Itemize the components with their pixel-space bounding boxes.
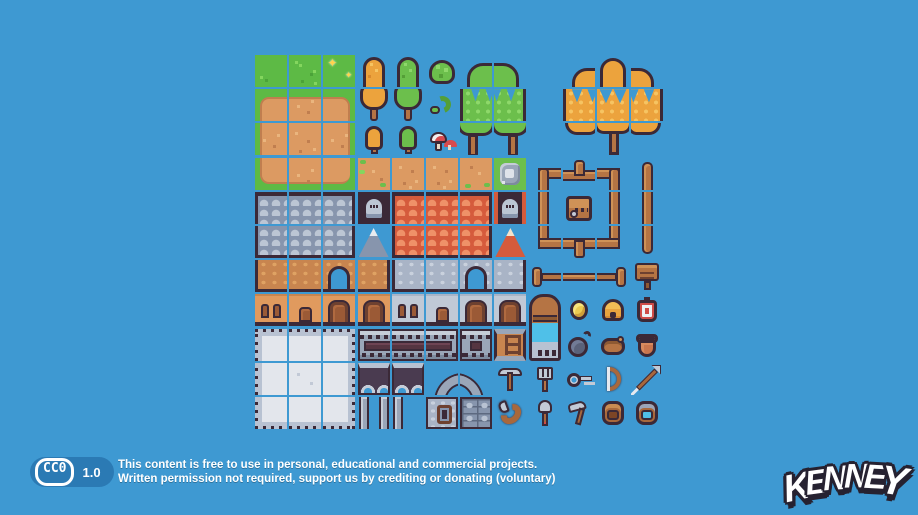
tile-wallG-arch [460, 260, 492, 292]
tile-plat-l [255, 363, 287, 395]
tile-treeO-sm [358, 123, 390, 155]
tile-doorG-s [426, 294, 458, 326]
tile-btO-br [631, 123, 663, 155]
tile-btO-mc [597, 89, 629, 121]
tile-fence-tr [597, 158, 629, 190]
tile-roofO-d [392, 226, 424, 258]
kenney-asset-promo: { "palette": { "background_blue": "#3e99… [0, 0, 918, 515]
tile-roofG-b [289, 192, 321, 224]
license-text: This content is free to use in personal,… [118, 459, 555, 486]
tile-hammer [563, 397, 595, 429]
tile-dirt-t [289, 89, 321, 121]
tile-pineO-bot [358, 89, 390, 121]
tile-fence-br [597, 226, 629, 258]
tile-sign [631, 260, 663, 292]
tile-btG-ml [460, 89, 492, 121]
tile-vine [426, 89, 458, 121]
tile-leg1 [392, 397, 424, 429]
tile-roofG-f [323, 226, 355, 258]
tile-fence-tl [529, 158, 561, 190]
tile-pickaxe [494, 363, 526, 395]
tile-legs2 [358, 397, 390, 429]
tile-bag [597, 397, 629, 429]
tile-ladder [494, 329, 526, 361]
tile-winG [392, 294, 424, 326]
tile-dirt-p [392, 158, 424, 190]
tile-plat-r [323, 363, 355, 395]
tile-atticG [358, 192, 390, 224]
tile-roofG-e [289, 226, 321, 258]
cc0-version: 1.0 [82, 465, 100, 480]
tile-dirt-tr [323, 89, 355, 121]
tile-bagblue [631, 397, 663, 429]
tile-roofO-b [426, 192, 458, 224]
tile-archR [460, 363, 492, 395]
tile-wallB-arch [323, 260, 355, 292]
tile-slot-r [426, 329, 458, 361]
tile-horn [494, 397, 526, 429]
tile-wallG-m [426, 260, 458, 292]
tile-bow [597, 363, 629, 395]
tile-btG-br [494, 123, 526, 155]
tile-btG-tr [494, 55, 526, 87]
tile-doorG2 [494, 294, 526, 326]
license-line-1: This content is free to use in personal,… [118, 459, 555, 473]
tile-doorB [323, 294, 355, 326]
tile-doorB2 [358, 294, 390, 326]
tile-dirt-bl [255, 158, 287, 190]
tile-plat-b [289, 397, 321, 429]
tile-dirt-b [289, 158, 321, 190]
tile-fence-bl [529, 226, 561, 258]
tile-hfence-m [563, 260, 595, 292]
tile-dirt-l [255, 123, 287, 155]
tile-btG-mr [494, 89, 526, 121]
kenney-logo: KENNEY [785, 461, 904, 501]
tile-coin [563, 294, 595, 326]
tile-roofO-a [392, 192, 424, 224]
tile-btO-bl [563, 123, 595, 155]
tile-arches-r [392, 363, 424, 395]
tile-dirt-br [323, 158, 355, 190]
tile-btO-tl [563, 55, 595, 87]
tile-fence-vr [597, 192, 629, 224]
tile-well [529, 294, 561, 360]
tile-pouch [597, 329, 629, 361]
tile-wallB-m [289, 260, 321, 292]
tile-chest [563, 192, 595, 224]
tile-arches-l [358, 363, 390, 395]
tile-slot-l [358, 329, 390, 361]
tile-wallG-r [494, 260, 526, 292]
tile-pot [631, 329, 663, 361]
tile-slot-s [460, 329, 492, 361]
tile-dirt-g2 [460, 158, 492, 190]
tile-winB [255, 294, 287, 326]
tile-post-mid [631, 192, 663, 224]
tile-fork [529, 363, 561, 395]
tile-dirt-tl [255, 89, 287, 121]
tile-fence-vl [529, 192, 561, 224]
tile-roofO-e [426, 226, 458, 258]
tile-plat-c [289, 363, 321, 395]
tile-btO-tr [631, 55, 663, 87]
tile-plat-bl [255, 397, 287, 429]
tile-shovel [529, 397, 561, 429]
tile-pineO-top [358, 55, 390, 87]
tile-btO-ml [563, 89, 595, 121]
tile-grass2 [289, 55, 321, 87]
tile-bomb [563, 329, 595, 361]
tile-plat-br [323, 397, 355, 429]
tile-roofG-d [255, 226, 287, 258]
tile-treeG-sm [392, 123, 424, 155]
tile-peakO [494, 226, 526, 258]
tile-grass-stones [494, 158, 526, 190]
tile-roofO-c [460, 192, 492, 224]
tile-grass3 [323, 55, 355, 87]
tile-wallG-l [392, 260, 424, 292]
tile-roofO-f [460, 226, 492, 258]
tile-bush [426, 55, 458, 87]
tile-key [563, 363, 595, 395]
tile-slot-m [392, 329, 424, 361]
tile-wallB-r [358, 260, 390, 292]
tile-target [631, 294, 663, 326]
tile-fence-tb [563, 226, 595, 258]
tile-dirt-r [323, 123, 355, 155]
tile-btG-tl [460, 55, 492, 87]
tile-archL [426, 363, 458, 395]
tile-beehive [597, 294, 629, 326]
tile-roofG-c [323, 192, 355, 224]
cc0-badge: CC0 1.0 [30, 457, 114, 487]
tile-plat-t [289, 329, 321, 361]
tile-dirt-p [426, 158, 458, 190]
tile-plat-tr [323, 329, 355, 361]
tile-pineG-top [392, 55, 424, 87]
tile-grass [255, 55, 287, 87]
license-line-2: Written permission not required, support… [118, 473, 555, 487]
tile-hfence-l [529, 260, 561, 292]
tile-btO-tc [597, 55, 629, 87]
tile-post-bot [631, 226, 663, 258]
tile-plat-tl [255, 329, 287, 361]
tile-roofG-a [255, 192, 287, 224]
tile-pineG-bot [392, 89, 424, 121]
tile-mushrooms [426, 123, 458, 155]
tile-fence-tt [563, 158, 595, 190]
tile-btO-bc [597, 123, 629, 155]
tile-btG-bl [460, 123, 492, 155]
tile-arrow [631, 363, 663, 395]
tile-peakG [358, 226, 390, 258]
tile-post-top [631, 158, 663, 190]
sprite-sheet [255, 55, 664, 430]
logo-letter-y-5: Y [878, 460, 910, 503]
tile-atticO [494, 192, 526, 224]
cc0-logo: CC0 [35, 458, 74, 486]
tile-win-stone [426, 397, 458, 429]
tile-bricks [460, 397, 492, 429]
tile-dirt-g1 [358, 158, 390, 190]
tile-doorB-s [289, 294, 321, 326]
tile-dirt-c [289, 123, 321, 155]
tile-hfence-r [597, 260, 629, 292]
tile-btO-mr [631, 89, 663, 121]
tile-wallB-l [255, 260, 287, 292]
tile-doorG [460, 294, 492, 326]
